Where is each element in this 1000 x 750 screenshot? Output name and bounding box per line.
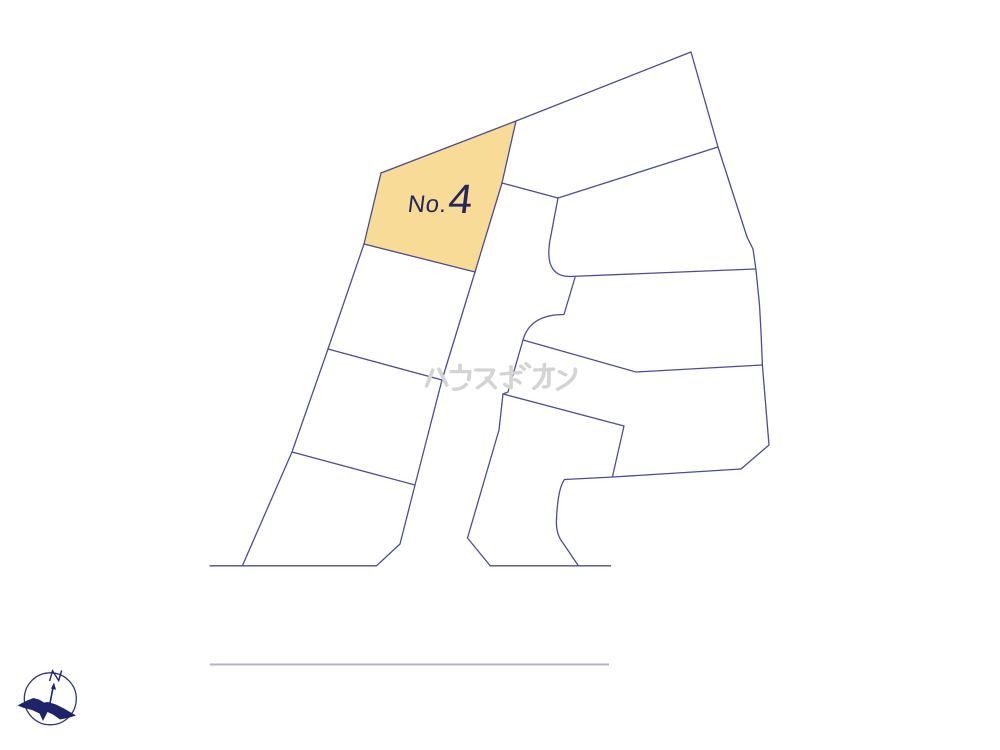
svg-text:No.: No.: [406, 191, 448, 218]
